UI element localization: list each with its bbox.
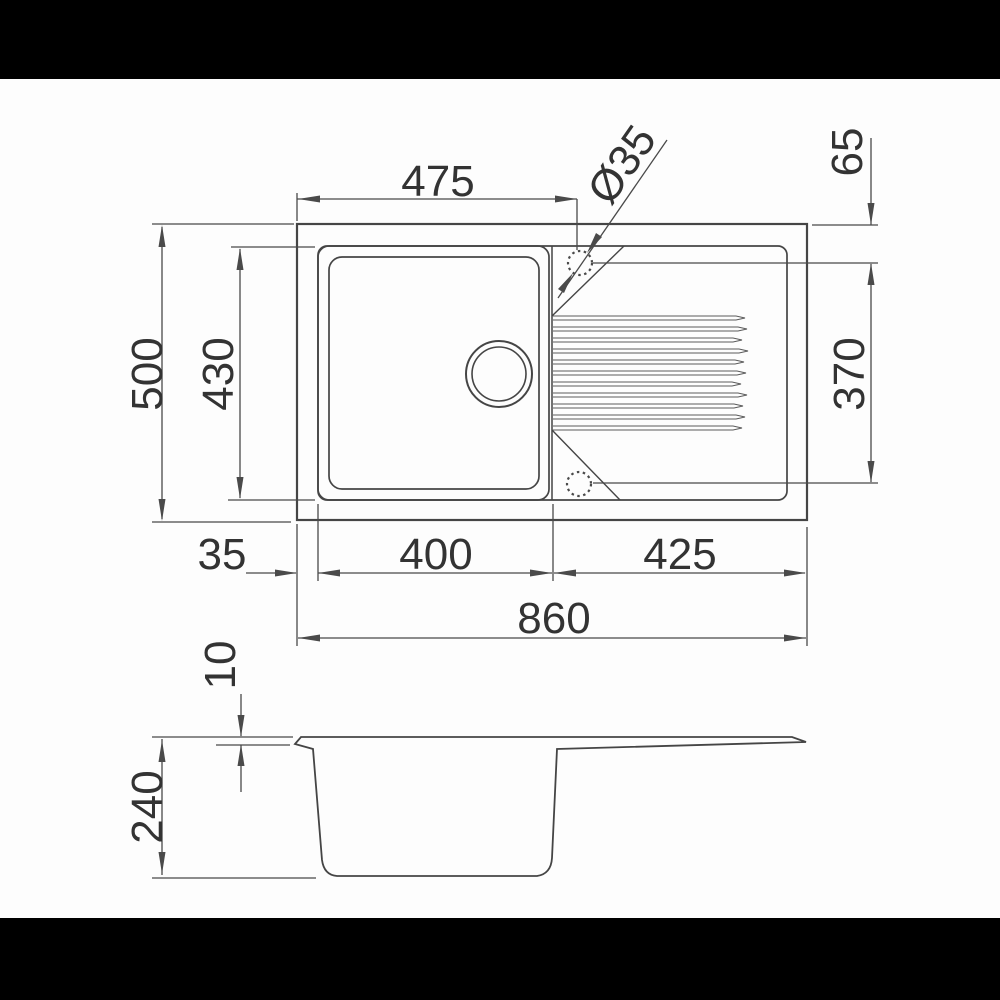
sink-plan-view <box>297 224 807 520</box>
drainer-top-diagonal <box>552 246 624 316</box>
letterbox-band-top <box>0 0 1000 79</box>
dim-label-65: 65 <box>823 128 872 177</box>
arrowhead <box>318 570 340 577</box>
arrowhead <box>868 461 875 483</box>
arrowhead <box>238 744 245 766</box>
arrowhead <box>298 196 320 203</box>
arrowhead <box>159 740 166 762</box>
arrowhead <box>159 225 166 247</box>
dim-label-35: 35 <box>198 530 247 579</box>
arrowhead <box>298 635 320 642</box>
arrowhead <box>587 233 602 253</box>
dimension-hole-diameter: Ø35 <box>558 117 667 298</box>
arrowhead <box>554 570 576 577</box>
dim-label-hole-diameter: Ø35 <box>578 117 666 213</box>
dim-label-500: 500 <box>123 337 172 410</box>
drain-inner-circle <box>472 347 526 401</box>
dimension-35-400-425: 35 400 425 <box>198 504 807 646</box>
dimension-860: 860 <box>298 594 806 643</box>
arrowhead <box>237 248 244 270</box>
letterbox-band-bottom <box>0 918 1000 1000</box>
bowl-inner-outline <box>329 257 539 489</box>
arrowhead <box>558 273 573 293</box>
dim-label-10: 10 <box>196 641 245 690</box>
dimension-240: 240 <box>123 737 316 878</box>
dim-label-400: 400 <box>399 530 472 579</box>
dim-label-475: 475 <box>401 157 474 206</box>
sink-technical-drawing-page: 475 Ø35 65 370 500 430 <box>0 0 1000 1000</box>
arrowhead <box>159 499 166 521</box>
drainer-bottom-diagonal <box>552 430 620 500</box>
dimension-10: 10 <box>196 641 290 792</box>
drainer-grooves <box>553 316 748 430</box>
dim-label-240: 240 <box>123 770 172 843</box>
arrowhead <box>238 715 245 737</box>
dim-label-370: 370 <box>825 337 874 410</box>
dim-label-425: 425 <box>643 530 716 579</box>
arrowhead <box>275 570 297 577</box>
dimension-475: 475 <box>297 157 577 250</box>
bowl-outer-outline <box>318 246 549 500</box>
tap-hole-bottom <box>567 472 591 496</box>
technical-drawing-canvas: 475 Ø35 65 370 500 430 <box>0 0 1000 1000</box>
dim-label-860: 860 <box>517 594 590 643</box>
arrowhead <box>784 570 806 577</box>
dim-label-430: 430 <box>194 337 243 410</box>
section-profile <box>295 737 806 876</box>
arrowhead <box>868 203 875 225</box>
drain-outer-circle <box>466 341 532 407</box>
arrowhead <box>555 196 577 203</box>
arrowhead <box>784 635 806 642</box>
sink-section-view <box>295 737 806 876</box>
arrowhead <box>237 477 244 499</box>
arrowhead <box>530 570 552 577</box>
dimension-370: 370 <box>593 264 878 483</box>
arrowhead <box>159 852 166 874</box>
